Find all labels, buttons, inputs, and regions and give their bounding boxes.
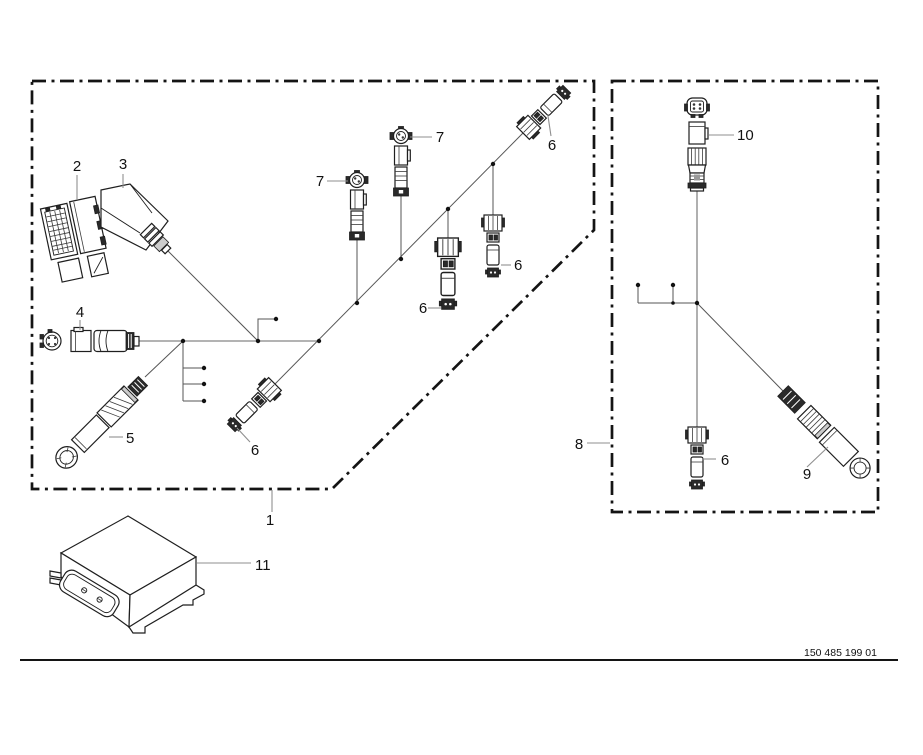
connector-7-b	[390, 127, 412, 197]
callout-7-b: 7	[436, 129, 444, 146]
harness-1-cables	[139, 133, 523, 401]
connector-6-harness-8	[686, 427, 709, 489]
callout-6-left: 6	[419, 300, 427, 317]
callout-11: 11	[255, 557, 271, 574]
callout-6-right: 6	[514, 257, 522, 274]
callout-7-a: 7	[316, 173, 324, 190]
callout-5: 5	[126, 430, 134, 447]
callout-6-mid: 6	[251, 442, 259, 459]
harness-1-boundary-box	[32, 81, 594, 489]
drawing-number: 150 485 199 01	[804, 647, 877, 659]
callout-leaders	[77, 116, 828, 563]
callout-1: 1	[266, 512, 274, 529]
connector-9	[776, 384, 875, 483]
connector-6-left-drop	[435, 238, 461, 309]
callout-3: 3	[119, 156, 127, 173]
junction-dots	[181, 162, 699, 403]
connector-5	[51, 374, 150, 473]
callout-6-top: 6	[548, 137, 556, 154]
callout-6-harness-8: 6	[721, 452, 729, 469]
connector-7-a	[346, 171, 368, 241]
callout-8: 8	[575, 436, 583, 453]
connector-3-angled-boot	[101, 184, 174, 257]
connector-6-mid	[223, 376, 283, 436]
connector-10	[685, 98, 710, 191]
callout-2: 2	[73, 158, 81, 175]
connector-6-top	[515, 81, 575, 141]
callout-4: 4	[76, 304, 84, 321]
control-unit-11	[50, 516, 204, 633]
harness-8-cables	[638, 191, 783, 427]
callout-10: 10	[737, 127, 754, 144]
parts-catalog-page: 1 2 3 4 5 6 6 6 6 6 7 7 8 9 10 11 150 48…	[0, 0, 923, 755]
connector-6-right-drop	[482, 215, 505, 277]
wiring-harness-parts-diagram: 1 2 3 4 5 6 6 6 6 6 7 7 8 9 10 11 150 48…	[0, 0, 923, 755]
connector-4	[40, 328, 139, 352]
callout-9: 9	[803, 466, 811, 483]
